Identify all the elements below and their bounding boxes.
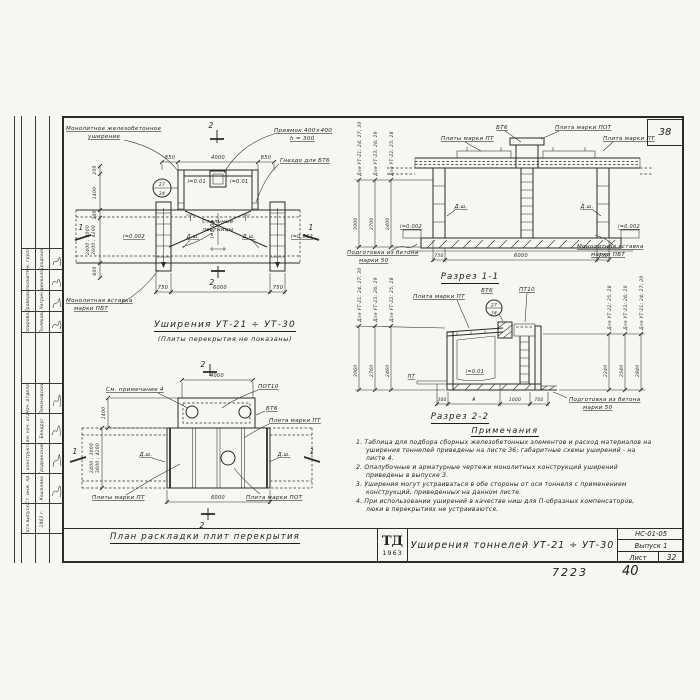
s2-right-group-3: Для УТ-21; 24; 27; 30: [639, 276, 645, 332]
s2-dimensions: 300 А 1000 700: [435, 384, 550, 406]
signature-mark: [50, 416, 62, 442]
stamp-row: Зам. нач. отд. Бендрус: [21, 413, 63, 443]
s1-label-base-2: марки 50: [359, 258, 389, 264]
notes-heading: Примечания: [356, 426, 654, 435]
s1-col-value-1: 3000: [353, 218, 359, 230]
label-joint-left: Д.ш.: [186, 234, 200, 240]
lp-label-slab-pot: Плита марки ПОТ: [246, 495, 303, 501]
detail-number: 27: [491, 303, 497, 309]
stamp-row: Дата выпуска 1963 г.: [21, 503, 63, 533]
s2-right-value-1: 2240: [603, 365, 609, 377]
plan-detail-circle: 27 34: [153, 179, 178, 197]
s2-dim-300: 300: [437, 397, 446, 403]
s2-dim-700: 700: [534, 397, 543, 403]
label-insert-2: марки ПБТ: [74, 306, 108, 312]
label-monolithic-widening-1: Монолитное железобетонное: [66, 126, 161, 132]
note-item-1: 1. Таблица для подбора сборных железобет…: [356, 439, 654, 463]
stamp-row: Копировала Полякова: [21, 311, 63, 332]
stamp-name: Бродский: [40, 249, 45, 269]
layout-plan-caption: План раскладки плит перекрытия: [100, 524, 310, 544]
dim-left-stack-1: 2400 ; 3000: [85, 225, 91, 255]
stamp-row: Проверил Чагрин: [21, 290, 63, 311]
signature-mark: [50, 313, 62, 332]
plan-callouts: Монолитное железобетонное уширение Приям…: [66, 126, 332, 312]
s2-label-pt: ПТ: [408, 374, 416, 380]
s2-label-slab-pt: Плита марки ПТ: [413, 294, 465, 300]
stamp-name: Полякова: [40, 312, 45, 332]
s2-left-group-3: Для УТ-22; 25; 28: [389, 277, 395, 323]
stamp-name: Гродзинский: [40, 444, 45, 473]
plan-caption-text: Уширения УТ-21 ÷ УТ-30: [154, 320, 296, 332]
s2-left-value-3: 2460: [385, 365, 391, 377]
lp-label-joint-left: Д.ш.: [139, 452, 153, 458]
s1-label-slab-pt: Плита марки ПТ: [603, 136, 655, 142]
layout-plan-caption-text: План раскладки плит перекрытия: [110, 532, 300, 544]
logo-year: 1963: [382, 549, 403, 557]
s1-label-bt6: БТ6: [496, 125, 508, 131]
s2-label-slope: i=0.01: [466, 369, 485, 375]
stamp-row: Исполнитель Единколов: [21, 269, 63, 290]
lp-dim-stack-2: 3600 ; 4200: [95, 443, 101, 473]
section-2-caption-text: Разрез 2-2: [431, 412, 490, 424]
stamp-role: Проверил: [26, 291, 31, 311]
s1-col-value-3: 2400: [385, 218, 391, 230]
section-mark-1-left: 1: [78, 223, 83, 232]
lp-label-see-note: См. примечание 4: [106, 387, 164, 393]
lp-mark-1-left: 1: [72, 447, 77, 456]
signature-mark: [50, 250, 62, 269]
s1-label-joint-right: Д.ш.: [580, 204, 594, 210]
stamp-row: Нач. отдела Ламановский: [21, 383, 63, 413]
logo-td: ТД: [382, 535, 403, 548]
s2-right-value-2: 2540: [619, 365, 625, 377]
dim-top-850-right: 850: [261, 155, 271, 161]
issue-number: Выпуск 1: [618, 540, 684, 552]
dim-bottom-750-left: 750: [158, 285, 168, 291]
footer-page-number: 40: [622, 564, 639, 579]
label-joint-right: Д.ш.: [242, 234, 256, 240]
s2-right-group-2: Для УТ-23; 26; 29: [623, 285, 629, 331]
sheet-number: 32: [658, 552, 684, 563]
document-code: НС-01-05: [618, 528, 684, 540]
lp-dim-6000: 6000: [211, 495, 225, 501]
stamp-name: Чагрин: [40, 292, 45, 309]
stamp-role: Зам. нач. отд.: [26, 414, 31, 443]
lp-label-slab-pt: Плита марки ПТ: [269, 418, 321, 424]
dim-left-1400: 1400: [92, 187, 98, 199]
detail-number: 27: [159, 182, 165, 188]
section-mark-2-bottom: 2: [209, 278, 214, 287]
label-monolithic-widening-2: уширение: [87, 134, 120, 140]
corner-sheet-number-value: 38: [659, 127, 672, 138]
stamp-role: Гл. конструктор: [26, 444, 31, 473]
section-2-2-drawing: Для УТ-21; 24; 27; 30 Для УТ-23; 26; 29 …: [345, 282, 657, 422]
title-block: ТД 1963 Уширения тоннелей УТ-21 ÷ УТ-30 …: [377, 528, 684, 563]
lp-label-bt6: БТ6: [266, 406, 278, 412]
section-mark-2-top: 2: [208, 121, 213, 130]
stamp-role: Копировала: [26, 312, 31, 332]
s2-left-value-1: 3060: [353, 365, 359, 377]
note-item-3: 3. Уширения могут устраиваться в обе сто…: [356, 481, 654, 497]
sheet-label: Лист: [618, 552, 658, 563]
dim-top-850-left: 850: [165, 155, 175, 161]
stamp-role: Рук. группы: [26, 249, 31, 269]
s2-right-group-1: Для УТ-22; 25; 28: [607, 285, 613, 331]
s1-label-slope-right: i=0.002: [618, 224, 640, 230]
s1-label-insert-1: Монолитная вставка: [577, 244, 644, 250]
stamp-row: Рук. группы Бродский: [21, 248, 63, 269]
s1-dim-750-left: 750: [434, 253, 443, 259]
organization-logo: ТД 1963: [378, 528, 408, 563]
signature-mark: [50, 386, 62, 412]
plan-section-marks: 2 2 1 1: [75, 121, 319, 287]
label-stairs-1: Стальные: [202, 219, 234, 225]
stamp-name: 1963 г.: [40, 510, 45, 527]
label-pit-1: Приямок 400×400: [274, 128, 332, 134]
dim-left-stack-2: 3600 ; 4200: [91, 225, 97, 255]
s1-dim-6000: 6000: [514, 253, 528, 259]
dim-bottom-6000: 6000: [213, 285, 227, 291]
drawing-title: Уширения тоннелей УТ-21 ÷ УТ-30: [408, 528, 617, 563]
label-insert-1: Монолитная вставка: [66, 298, 133, 304]
label-slope-0002-right: i=0.002: [291, 234, 313, 240]
signature-mark: [50, 476, 62, 502]
s2-right-value-3: 2840: [635, 365, 641, 377]
plan-caption: Уширения УТ-21 ÷ УТ-30 (Плиты перекрытия…: [130, 312, 320, 343]
s2-callouts: Плита марки ПТ БТ6 ПТ10 ПТ i=0.01 Подгот…: [408, 287, 641, 411]
s2-left-group-1: Для УТ-21; 24; 27; 30: [357, 268, 363, 324]
lp-dim-1400: 1400: [101, 407, 107, 419]
section-1-1-drawing: Для УТ-21; 24; 27; 30 Для УТ-23; 26; 29 …: [345, 118, 657, 280]
lp-label-slabs-pt: Плиты марки ПТ: [92, 495, 145, 501]
left-stamp-strip: Рук. группы Бродский Исполнитель Единкол…: [14, 116, 62, 563]
stamp-role: Нач. отдела: [26, 384, 31, 413]
plan-structure: [76, 170, 300, 271]
note-item-4: 4. При использовании уширений в качестве…: [356, 498, 654, 514]
s1-col-group-2: Для УТ-23; 26; 29: [373, 131, 379, 177]
signature-mark: [50, 446, 62, 472]
label-pit-2: h = 300: [290, 136, 315, 142]
blueprint-sheet: { "corner_sheet_number": "38", "footer":…: [0, 0, 700, 700]
s1-col-value-2: 2700: [369, 218, 375, 230]
s2-label-bt6: БТ6: [481, 288, 493, 294]
s2-label-base-2: марки 50: [583, 405, 613, 411]
stamp-name: Бендрус: [40, 418, 45, 438]
lp-section-marks: 2 2 1 1: [70, 360, 320, 530]
s1-label-insert-2: марки ПБТ: [591, 252, 625, 258]
stamp-name: Ламановский: [40, 384, 45, 413]
slab-layout-drawing: 4000 1400 2400 ; 3000 3600 ; 4200 6000 2…: [62, 358, 352, 533]
stamp-name: Единколов: [40, 270, 45, 290]
stamp-name: Кошелева: [40, 476, 45, 500]
notes-block: Примечания 1. Таблица для подбора сборны…: [356, 426, 654, 515]
s2-left-group-2: Для УТ-23; 26; 29: [373, 277, 379, 323]
s2-structure: [417, 322, 557, 390]
footer-doc-number: 7223: [552, 566, 588, 579]
stamp-role: Ст. инж. пр.: [26, 474, 31, 503]
dim-left-200: 200: [92, 165, 98, 174]
s2-dim-1000: 1000: [509, 397, 521, 403]
s2-left-dimension-columns: Для УТ-21; 24; 27; 30 Для УТ-23; 26; 29 …: [353, 268, 445, 393]
title-block-right-column: НС-01-05 Выпуск 1 Лист 32: [617, 528, 684, 563]
s2-label-pt10: ПТ10: [519, 287, 535, 293]
lp-dim-stack-1: 2400 ; 3000: [89, 443, 95, 473]
section-1-caption: Разрез 1-1: [410, 264, 530, 284]
dim-top-4000: 4000: [211, 155, 225, 161]
section-mark-1-right: 1: [308, 223, 313, 232]
s1-label-base-1: Подготовка из бетона: [347, 250, 419, 256]
note-item-2: 2. Опалубочные и арматурные чертежи моно…: [356, 464, 654, 480]
s2-left-value-2: 2760: [369, 365, 375, 377]
plan-caption-sub: (Плиты перекрытия не показаны): [130, 335, 320, 343]
s2-right-dimension-columns: Для УТ-22; 25; 28 Для УТ-23; 26; 29 Для …: [543, 276, 645, 393]
s1-label-slabs-pt: Плиты марки ПТ: [441, 136, 494, 142]
lp-label-pot10: ПОТ10: [258, 384, 279, 390]
stamp-lower-band: Нач. отдела Ламановский Зам. нач. отд. Б…: [21, 383, 63, 534]
lp-mark-2-top: 2: [200, 360, 205, 369]
s2-detail-circle: 27 34: [486, 300, 503, 321]
lp-dim-4000: 4000: [210, 373, 224, 379]
lp-callouts: См. примечание 4 ПОТ10 БТ6 Плита марки П…: [92, 384, 321, 501]
s1-label-joint-left: Д.ш.: [454, 204, 468, 210]
section-2-caption: Разрез 2-2: [405, 404, 515, 424]
detail-sheet: 34: [159, 191, 165, 197]
s1-col-group-3: Для УТ-22; 25; 28: [389, 131, 395, 177]
label-socket: Гнездо для БТ6: [280, 158, 330, 164]
dim-left-300: 300: [92, 210, 98, 219]
detail-sheet: 34: [491, 311, 497, 317]
s1-structure: [387, 138, 653, 251]
label-slope-001-center: i=0.01: [210, 220, 216, 239]
stamp-row: Гл. конструктор Гродзинский: [21, 443, 63, 473]
stamp-role: Дата выпуска: [26, 504, 31, 533]
label-stairs-2: лестницы: [201, 227, 234, 233]
lp-label-joint-right: Д.ш.: [277, 452, 291, 458]
dim-left-600: 600: [92, 266, 98, 275]
sheet-row: Лист 32: [618, 552, 684, 563]
stamp-role: Исполнитель: [26, 270, 31, 290]
stamp-row: Ст. инж. пр. Кошелева: [21, 473, 63, 503]
label-slope-001-left: i=0.01: [187, 179, 206, 185]
s2-label-base-1: Подготовка из бетона: [569, 397, 641, 403]
lp-mark-1-right: 1: [309, 447, 314, 456]
stamp-upper-band: Рук. группы Бродский Исполнитель Единкол…: [21, 248, 63, 333]
label-slope-0002-left: i=0.002: [123, 234, 145, 240]
dim-bottom-750-right: 750: [273, 285, 283, 291]
s2-dim-a: А: [471, 397, 476, 403]
s1-label-slab-pot: Плита марки ПОТ: [555, 125, 612, 131]
signature-mark: [50, 271, 62, 290]
s1-label-slope-left: i=0.002: [400, 224, 422, 230]
label-slope-001-right: i=0.01: [230, 179, 249, 185]
signature-mark: [50, 292, 62, 311]
s1-col-group-1: Для УТ-21; 24; 27; 30: [357, 122, 363, 178]
